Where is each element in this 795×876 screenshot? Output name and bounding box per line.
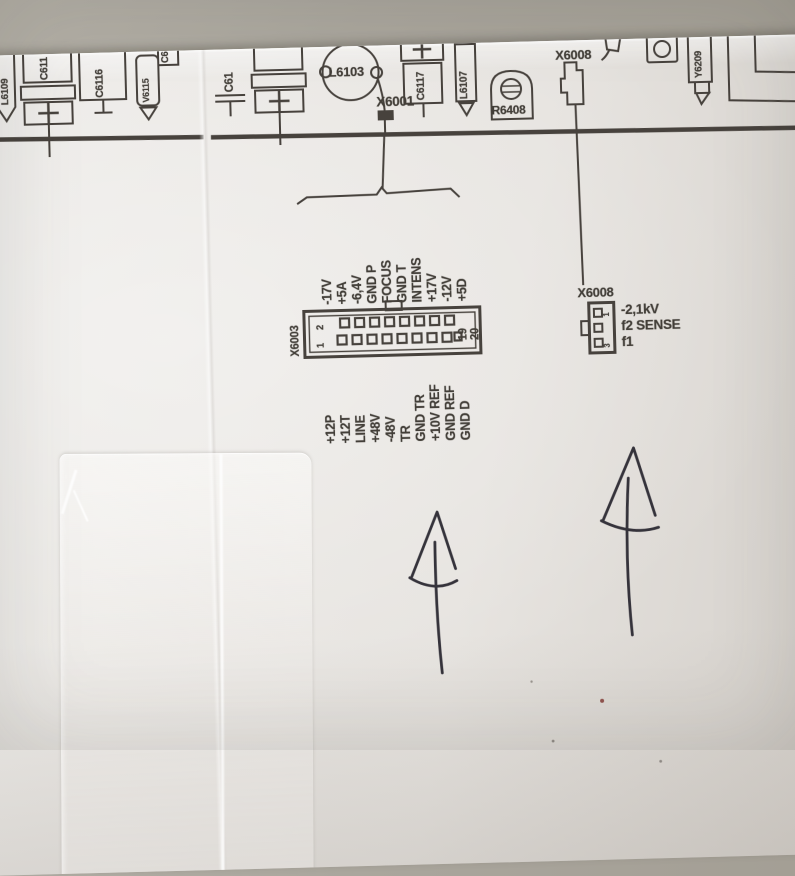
- schematic-border-line: [0, 116, 795, 149]
- electrolytic-symbol: [250, 32, 307, 144]
- x6008-pin-number-1: 1: [603, 313, 611, 317]
- x6008-voltage-label: -2,1kV: [621, 302, 659, 316]
- x6008-top-symbol: [560, 62, 588, 284]
- x6003-bottom-pin-label: LINE: [354, 415, 368, 443]
- x6003-bottom-pin-label: GND REF: [443, 385, 458, 440]
- schematic-paper-sheet: L6109 C611 C6116 V6115 C6 C61 C6117 L610…: [0, 32, 795, 875]
- hand-drawn-arrow-right: [599, 447, 661, 635]
- c61-symbol: [216, 95, 245, 116]
- x6003-pin-number-1: 1: [317, 343, 327, 348]
- tape-crinkle: [73, 490, 89, 522]
- x6003-connector-label: X6003: [288, 325, 301, 357]
- part-label-r6408: R6408: [491, 104, 525, 117]
- lamp-symbol: [647, 36, 678, 63]
- part-label-x6001: X6001: [376, 95, 414, 109]
- part-label-l6109: L6109: [0, 79, 11, 106]
- x6003-bottom-pin-label: GND D: [458, 401, 473, 441]
- cable-splay: [298, 185, 459, 203]
- x6008-connector-label: X6008: [577, 285, 613, 299]
- x6003-bottom-pin-label: GND TR: [413, 394, 428, 441]
- x6003-bottom-pin-label: +48V: [369, 414, 383, 443]
- x6003-top-pin-label: INTENS: [409, 257, 424, 302]
- x6008-f1-label: f1: [622, 335, 634, 349]
- x6003-pin-number-20: 20: [468, 328, 480, 340]
- part-label-v6115: V6115: [142, 78, 152, 102]
- tape-highlight-streak: [219, 454, 224, 876]
- part-label-l6103: L6103: [328, 65, 364, 79]
- x6003-top-pin-label: -12V: [440, 276, 454, 302]
- x6008-f2-sense-label: f2 SENSE: [621, 318, 680, 333]
- x6003-top-pin-label: FOCUS: [379, 260, 394, 303]
- x6003-top-pin-label: +17V: [425, 273, 439, 302]
- hand-drawn-arrow-left: [408, 512, 459, 674]
- part-label-c61: C61: [223, 72, 236, 92]
- testpoint-flag-symbol: [602, 33, 622, 59]
- part-label-c6117: C6117: [416, 72, 428, 101]
- transparent-tape-patch: [59, 453, 313, 876]
- x6003-pin-grid: [337, 315, 462, 344]
- part-label-c6116: C6116: [94, 69, 106, 98]
- x6003-bottom-pin-label: -48V: [384, 416, 398, 442]
- part-label-y6209: Y6209: [693, 51, 704, 78]
- x6003-bottom-pin-label: TR: [399, 425, 413, 442]
- x6003-top-pin-label: -17V: [320, 279, 334, 305]
- x6003-top-pin-label: GND P: [365, 265, 380, 304]
- photo-of-schematic: { "parts": { "l6109": "L6109", "c611": "…: [0, 0, 795, 750]
- part-label-l6107: L6107: [459, 71, 471, 99]
- x6003-bottom-pin-label: +12P: [324, 415, 338, 444]
- x6008-pin-number-3: 3: [604, 344, 612, 348]
- x6003-bottom-pin-label: +12T: [339, 415, 353, 443]
- paper-specks: [530, 677, 662, 766]
- x6001-symbol: [296, 109, 459, 203]
- x6003-bottom-pin-label: +10V REF: [428, 384, 443, 441]
- part-label-x6008-top: X6008: [555, 48, 591, 62]
- part-label-c6-partial: C6: [161, 51, 171, 63]
- x6003-top-pin-label: +5A: [335, 282, 349, 305]
- frame-corner-lines: [728, 32, 795, 106]
- x6003-top-pin-label: +5D: [455, 278, 469, 301]
- part-label-c611: C611: [39, 57, 51, 80]
- x6003-top-pin-label: GND T: [395, 265, 409, 303]
- x6003-pin-number-2: 2: [316, 325, 326, 330]
- x6003-top-pin-label: -6,4V: [350, 275, 364, 304]
